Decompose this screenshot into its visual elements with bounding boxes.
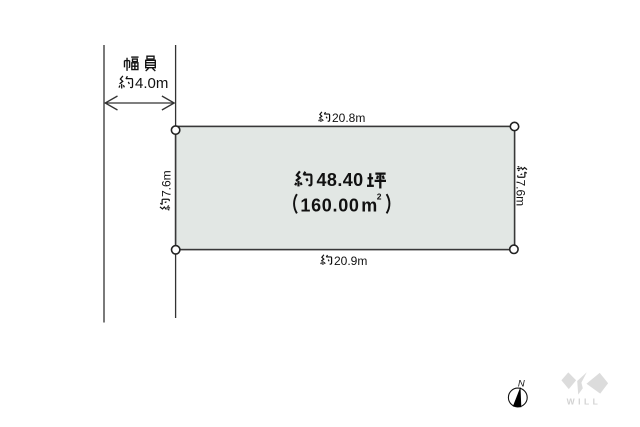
svg-text:7.6m: 7.6m	[514, 180, 528, 207]
svg-text:m: m	[361, 195, 377, 215]
svg-text:20.9m: 20.9m	[334, 254, 367, 268]
svg-text:WILL: WILL	[567, 397, 602, 407]
svg-text:N: N	[518, 378, 525, 389]
svg-text:7.6m: 7.6m	[160, 170, 174, 197]
svg-text:2: 2	[377, 192, 382, 202]
svg-text:4.0m: 4.0m	[135, 75, 168, 92]
svg-text:48.40: 48.40	[317, 170, 364, 190]
svg-text:20.8m: 20.8m	[332, 111, 365, 125]
svg-text:160.00: 160.00	[300, 195, 359, 215]
